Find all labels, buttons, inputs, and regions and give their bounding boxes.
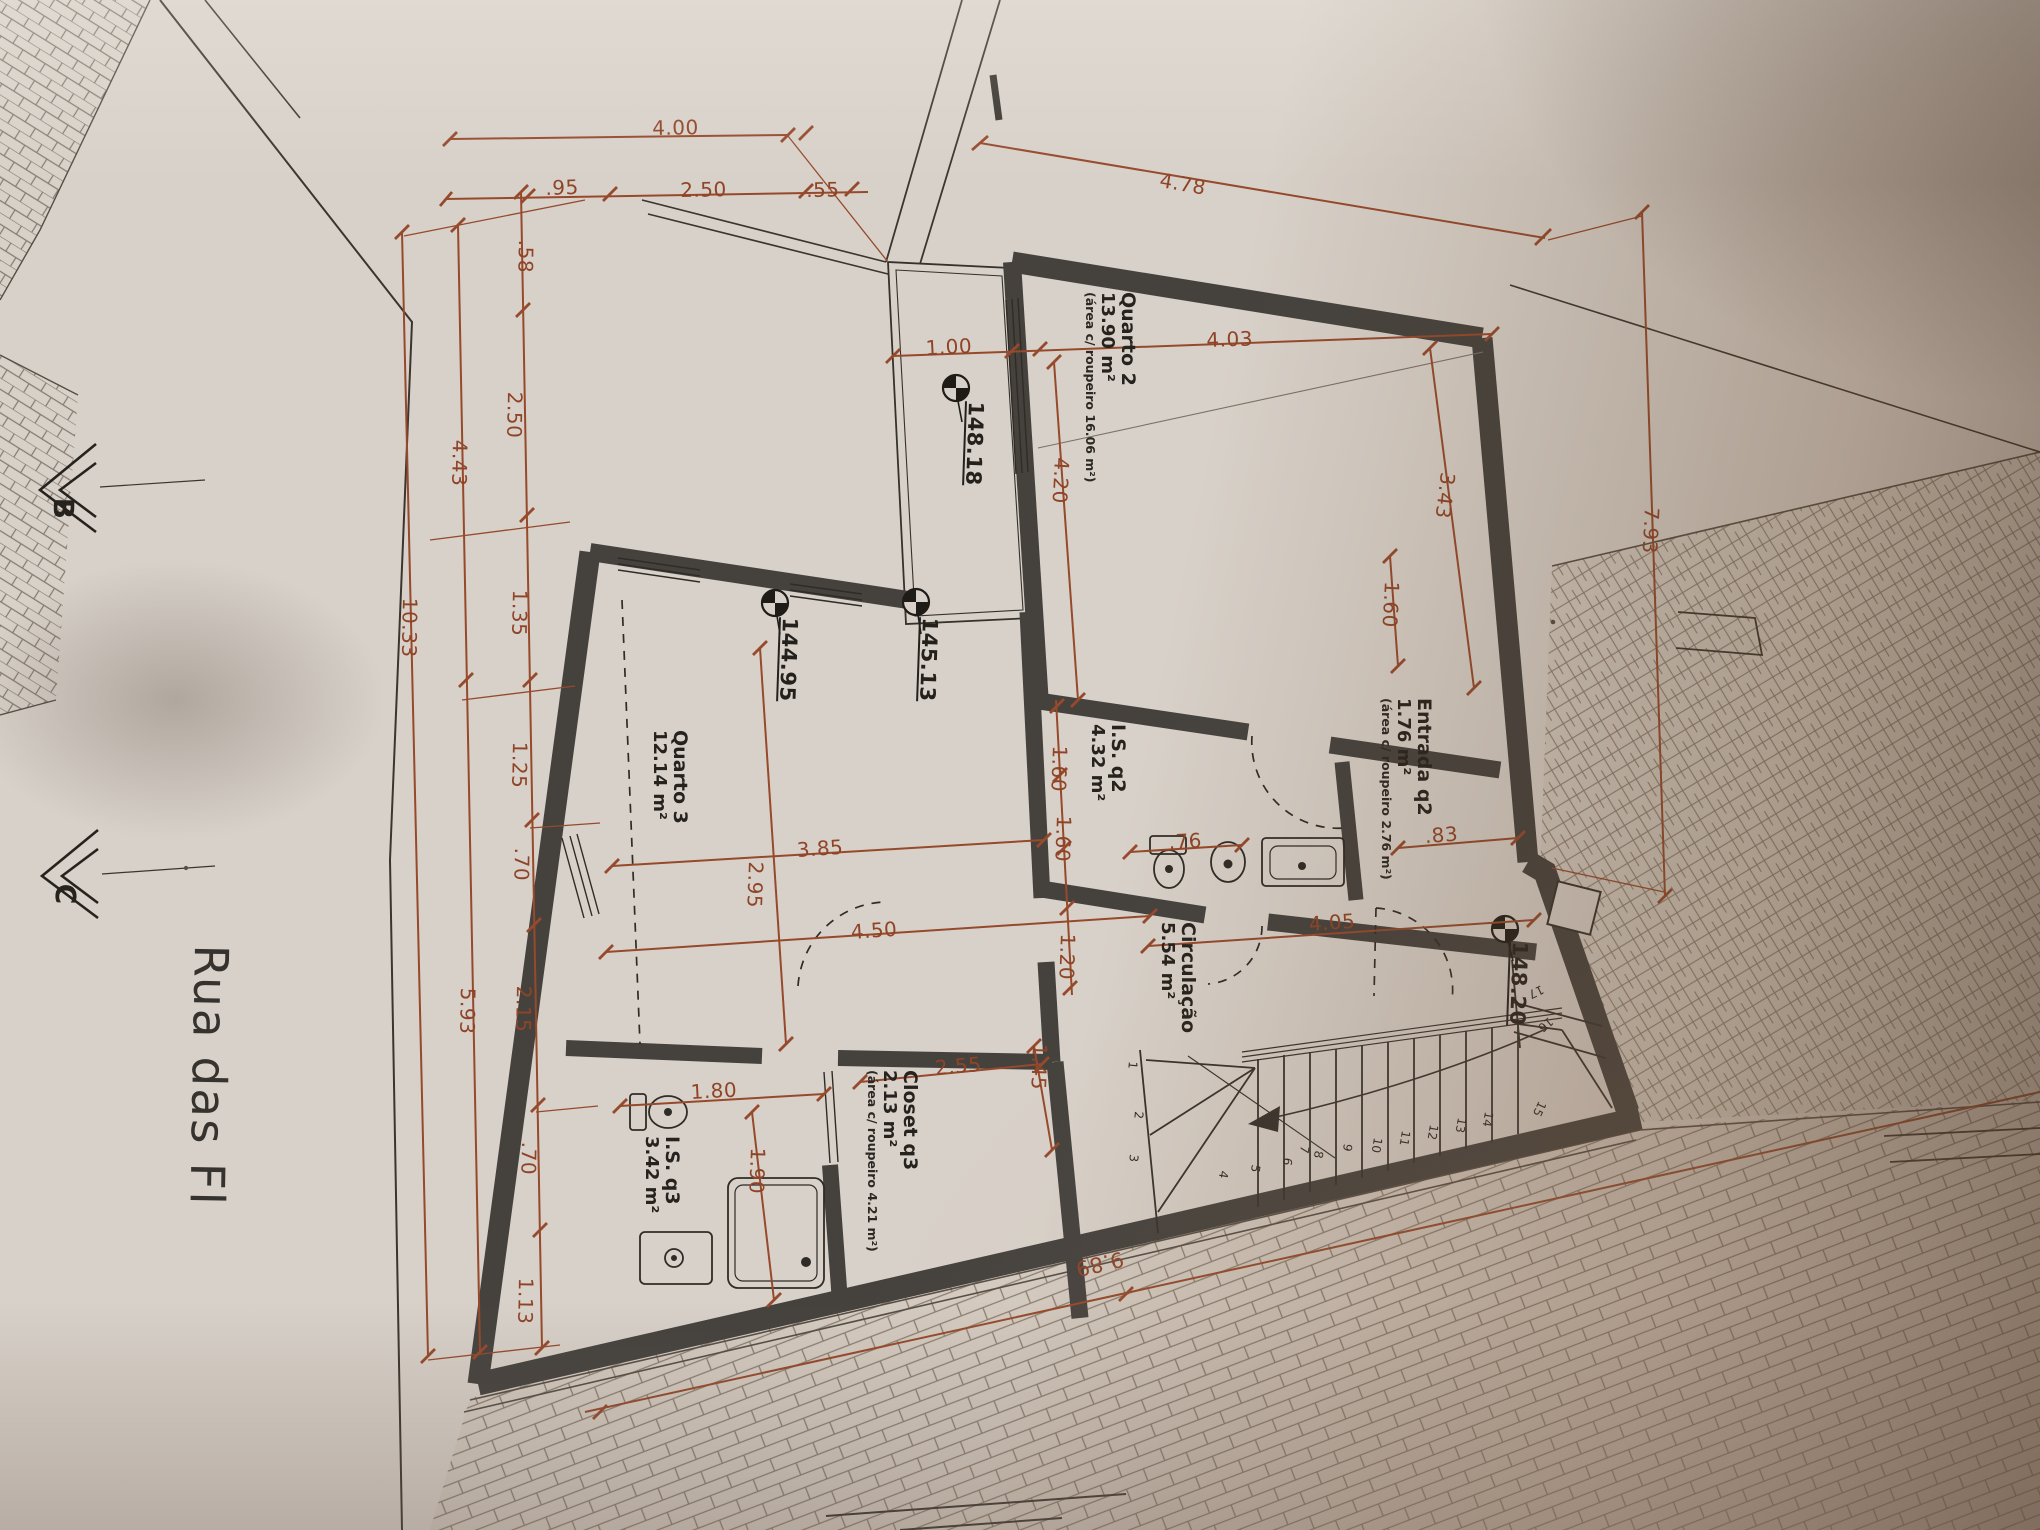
dim-label: 2.50 bbox=[680, 177, 727, 202]
dim-label: 1.45 bbox=[1026, 1043, 1052, 1090]
elevation-label: 144.95 bbox=[775, 617, 802, 702]
dim-label: 1.60 bbox=[1378, 581, 1404, 629]
elevation-label: 148.18 bbox=[961, 401, 988, 486]
stair-step-number: 11 bbox=[1397, 1130, 1413, 1147]
dim-label: 1.90 bbox=[744, 1147, 770, 1194]
room-area: 1.76 m² bbox=[1393, 698, 1413, 894]
dim-label: .55 bbox=[806, 177, 840, 202]
room-label-quarto-3: Quarto 3 12.14 m² bbox=[649, 730, 690, 842]
room-area: 5.54 m² bbox=[1157, 922, 1177, 1032]
room-label-is-q2: I.S. q2 4.32 m² bbox=[1087, 724, 1128, 814]
dim-label: .70 bbox=[509, 848, 534, 882]
room-label-entrada-q2: Entrada q2 1.76 m² (área c/ roupeiro 2.7… bbox=[1379, 698, 1434, 894]
dim-label: 10.33 bbox=[397, 598, 422, 658]
dim-label: 2.15 bbox=[511, 986, 536, 1033]
room-name: Circulação bbox=[1177, 922, 1198, 1032]
room-area: 4.32 m² bbox=[1087, 724, 1107, 814]
room-name: Quarto 2 bbox=[1117, 292, 1138, 520]
dim-label: .76 bbox=[1168, 828, 1203, 854]
floor-plan-drawing bbox=[0, 0, 2040, 1530]
room-area: 12.14 m² bbox=[649, 730, 669, 842]
room-name: Closet q3 bbox=[899, 1070, 920, 1264]
dim-label: 1.25 bbox=[507, 742, 532, 789]
street-name: Rua das Fl bbox=[176, 944, 238, 1365]
stair-step-number: 1 bbox=[1125, 1061, 1140, 1070]
dim-label: 4.50 bbox=[850, 917, 898, 944]
room-name: Entrada q2 bbox=[1413, 698, 1434, 894]
dim-label: 1.20 bbox=[1054, 933, 1080, 980]
room-area: 2.13 m² bbox=[879, 1070, 899, 1264]
room-label-closet-q3: Closet q3 2.13 m² (área c/ roupeiro 4.21… bbox=[865, 1070, 920, 1264]
stair-step-number: 14 bbox=[1480, 1111, 1496, 1128]
dim-label: 4.20 bbox=[1048, 457, 1074, 505]
dim-label: 4.43 bbox=[447, 440, 472, 487]
section-letter-b: B bbox=[47, 497, 80, 519]
room-name: Quarto 3 bbox=[669, 730, 690, 842]
stair-step-number: 13 bbox=[1453, 1117, 1469, 1134]
dim-label: .70 bbox=[516, 1142, 541, 1176]
room-label-quarto-2: Quarto 2 13.90 m² (área c/ roupeiro 16.0… bbox=[1083, 292, 1138, 520]
stair-step-number: 2 bbox=[1131, 1111, 1146, 1120]
dim-label: 1.13 bbox=[513, 1278, 538, 1325]
dim-label: .58 bbox=[513, 240, 538, 274]
dim-label: 1.60 bbox=[1050, 815, 1076, 862]
room-label-circulacao: Circulação 5.54 m² bbox=[1157, 922, 1198, 1032]
dim-label: 1.80 bbox=[690, 1078, 738, 1104]
stair-step-number: 3 bbox=[1126, 1154, 1141, 1163]
dim-label: .95 bbox=[545, 175, 579, 200]
room-name: I.S. q3 bbox=[661, 1136, 682, 1224]
section-letter-c: C bbox=[49, 883, 82, 904]
dim-label: 2.50 bbox=[502, 392, 527, 439]
dim-label: 1.00 bbox=[925, 334, 973, 360]
dim-label: 2.95 bbox=[742, 861, 768, 908]
dim-label: 2.55 bbox=[934, 1052, 982, 1080]
exterior-hatch-areas bbox=[0, 0, 2040, 1530]
room-note: (área c/ roupeiro 16.06 m²) bbox=[1083, 292, 1097, 520]
window-lines bbox=[562, 298, 1028, 1163]
room-name: I.S. q2 bbox=[1107, 724, 1128, 814]
dim-label: 3.85 bbox=[796, 835, 844, 862]
dim-label: 4.05 bbox=[1308, 909, 1356, 936]
dim-label: 1.60 bbox=[1046, 745, 1072, 792]
dim-label: 4.03 bbox=[1206, 326, 1253, 352]
dim-label: 1.35 bbox=[507, 590, 532, 637]
floor-plan-photo: 4.00 .95 2.50 .55 4.78 .58 2.50 1.35 1.2… bbox=[0, 0, 2040, 1530]
room-note: (área c/ roupeiro 2.76 m²) bbox=[1379, 698, 1393, 894]
dim-label: 5.93 bbox=[455, 988, 480, 1035]
dim-label: 4.00 bbox=[652, 115, 699, 140]
stair-step-number: 12 bbox=[1425, 1124, 1441, 1141]
dim-label: 7.93 bbox=[1638, 507, 1664, 555]
room-note: (área c/ roupeiro 4.21 m²) bbox=[865, 1070, 879, 1264]
stair-step-number: 10 bbox=[1369, 1137, 1385, 1154]
elevation-label: 145.13 bbox=[915, 617, 942, 702]
room-area: 3.42 m² bbox=[641, 1136, 661, 1224]
room-label-is-q3: I.S. q3 3.42 m² bbox=[641, 1136, 682, 1224]
elevation-label: 148.20 bbox=[1505, 941, 1532, 1026]
room-area: 13.90 m² bbox=[1097, 292, 1117, 520]
